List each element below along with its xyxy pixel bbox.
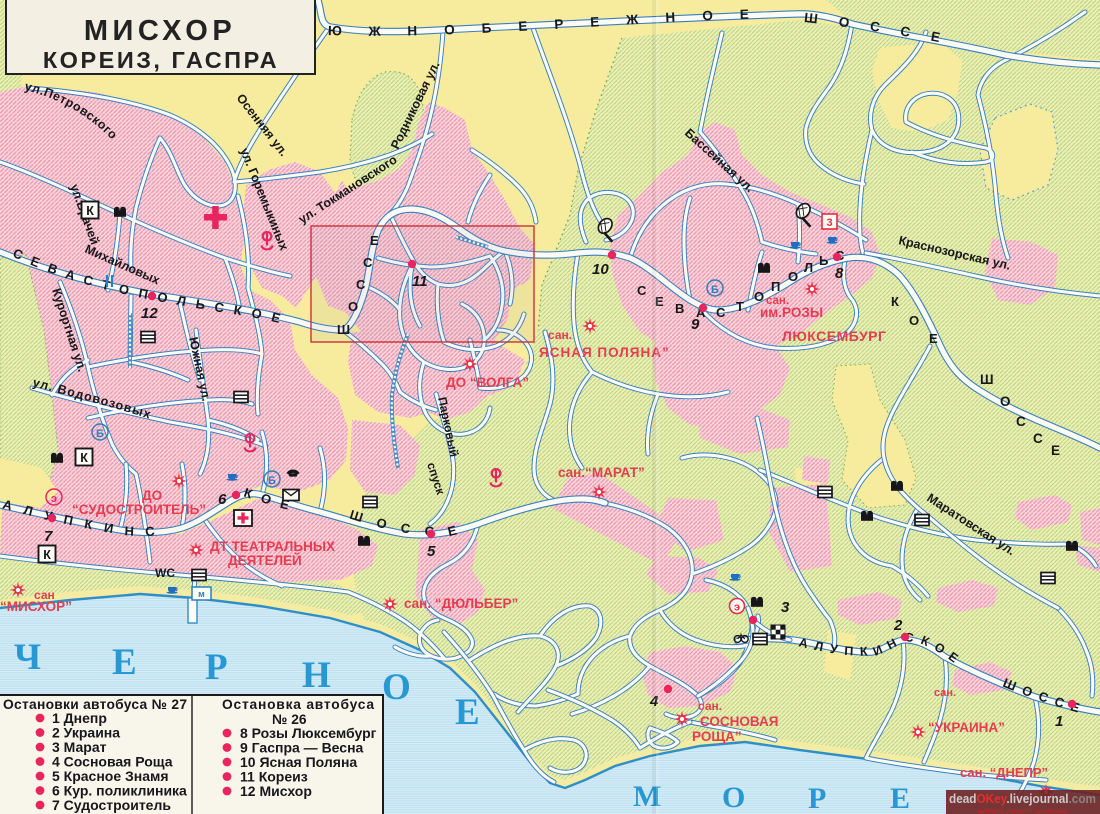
svg-text:Р: Р xyxy=(808,782,826,814)
svg-text:Е: Е xyxy=(112,642,137,683)
svg-text:Ь: Ь xyxy=(819,253,828,268)
svg-text:Б: Б xyxy=(268,475,276,487)
svg-text:Ш: Ш xyxy=(980,372,994,387)
svg-text:МИСХОР: МИСХОР xyxy=(84,15,236,47)
svg-text:Р: Р xyxy=(205,647,228,688)
svg-text:э: э xyxy=(734,602,740,614)
svg-text:7 Судостроитель: 7 Судостроитель xyxy=(52,797,171,813)
svg-text:К: К xyxy=(891,294,899,309)
svg-text:О: О xyxy=(722,781,745,814)
svg-text:1: 1 xyxy=(1055,713,1063,730)
svg-text:О: О xyxy=(754,289,764,304)
svg-text:“МИСХОР”: “МИСХОР” xyxy=(0,599,72,614)
svg-text:12: 12 xyxy=(141,305,158,322)
svg-text:11: 11 xyxy=(412,273,428,290)
svg-text:автопись русского зарубежья: автопись русского зарубежья xyxy=(978,807,1067,814)
svg-text:Т: Т xyxy=(736,299,744,314)
svg-text:ДТ ТЕАТРАЛЬНЫХ: ДТ ТЕАТРАЛЬНЫХ xyxy=(210,539,335,554)
svg-text:С: С xyxy=(1016,414,1026,429)
svg-text:СОСНОВАЯ: СОСНОВАЯ xyxy=(700,714,778,729)
svg-text:“УКРАИНА”: “УКРАИНА” xyxy=(928,720,1005,735)
svg-text:Е: Е xyxy=(455,692,480,733)
svg-text:сан.: сан. xyxy=(698,699,722,713)
svg-text:Е: Е xyxy=(929,331,938,346)
svg-text:Ч: Ч xyxy=(14,637,41,678)
svg-text:8: 8 xyxy=(835,265,844,282)
svg-text:э: э xyxy=(51,493,57,505)
svg-text:10: 10 xyxy=(592,261,609,278)
svg-text:Б: Б xyxy=(96,428,104,440)
svg-text:5: 5 xyxy=(427,543,436,560)
svg-text:РОЩА”: РОЩА” xyxy=(692,729,742,744)
svg-text:2: 2 xyxy=(893,617,903,634)
svg-text:9: 9 xyxy=(691,316,700,333)
svg-text:С: С xyxy=(637,283,647,298)
svg-text:ДО: ДО xyxy=(142,488,162,503)
svg-text:ДЕЯТЕЛЕЙ: ДЕЯТЕЛЕЙ xyxy=(228,553,302,568)
svg-text:О: О xyxy=(1000,394,1011,409)
svg-text:КОРЕИЗ, ГАСПРА: КОРЕИЗ, ГАСПРА xyxy=(43,47,279,73)
svg-text:О: О xyxy=(788,269,798,284)
svg-text:Е: Е xyxy=(1051,443,1060,458)
svg-text:Н: Н xyxy=(302,655,331,696)
svg-text:3: 3 xyxy=(781,599,790,616)
svg-text:С: С xyxy=(716,305,726,320)
svg-text:О: О xyxy=(909,313,919,328)
svg-text:Е: Е xyxy=(370,233,379,248)
svg-text:П: П xyxy=(771,279,780,294)
svg-text:О: О xyxy=(348,299,358,314)
svg-text:6: 6 xyxy=(218,491,227,508)
svg-text:ДО “ВОЛГА”: ДО “ВОЛГА” xyxy=(446,375,529,390)
svg-text:О: О xyxy=(382,667,411,708)
svg-text:ЛЮКСЕМБУРГ: ЛЮКСЕМБУРГ xyxy=(782,328,886,344)
svg-text:В: В xyxy=(675,301,684,316)
svg-text:“СУДОСТРОИТЕЛЬ”: “СУДОСТРОИТЕЛЬ” xyxy=(72,502,206,517)
svg-text:м: м xyxy=(198,589,205,599)
svg-text:3: 3 xyxy=(826,217,832,229)
svg-text:Ш: Ш xyxy=(337,322,350,337)
svg-text:сан.: сан. xyxy=(934,687,956,699)
svg-text:С: С xyxy=(1033,431,1043,446)
svg-text:ЯСНАЯ ПОЛЯНА”: ЯСНАЯ ПОЛЯНА” xyxy=(539,345,670,360)
svg-text:7: 7 xyxy=(44,528,53,545)
svg-text:сан.“МАРАТ”: сан.“МАРАТ” xyxy=(558,465,645,480)
svg-text:сан. “ДЮЛЬБЕР”: сан. “ДЮЛЬБЕР” xyxy=(404,596,518,611)
svg-text:С: С xyxy=(356,277,366,292)
svg-text:сан. “ДНЕПР”: сан. “ДНЕПР” xyxy=(960,765,1048,780)
svg-text:сан.: сан. xyxy=(548,328,572,342)
svg-text:Б: Б xyxy=(711,284,719,296)
svg-text:WC: WC xyxy=(155,566,175,580)
svg-text:deadOKey.livejournal.com: deadOKey.livejournal.com xyxy=(949,791,1096,806)
svg-text:Е: Е xyxy=(890,782,910,814)
svg-text:Л: Л xyxy=(804,260,813,275)
svg-text:им.РОЗЫ: им.РОЗЫ xyxy=(760,305,823,320)
svg-text:С: С xyxy=(363,255,373,270)
svg-text:Остановка автобуса: Остановка автобуса xyxy=(222,697,374,712)
svg-text:12 Мисхор: 12 Мисхор xyxy=(240,783,312,799)
